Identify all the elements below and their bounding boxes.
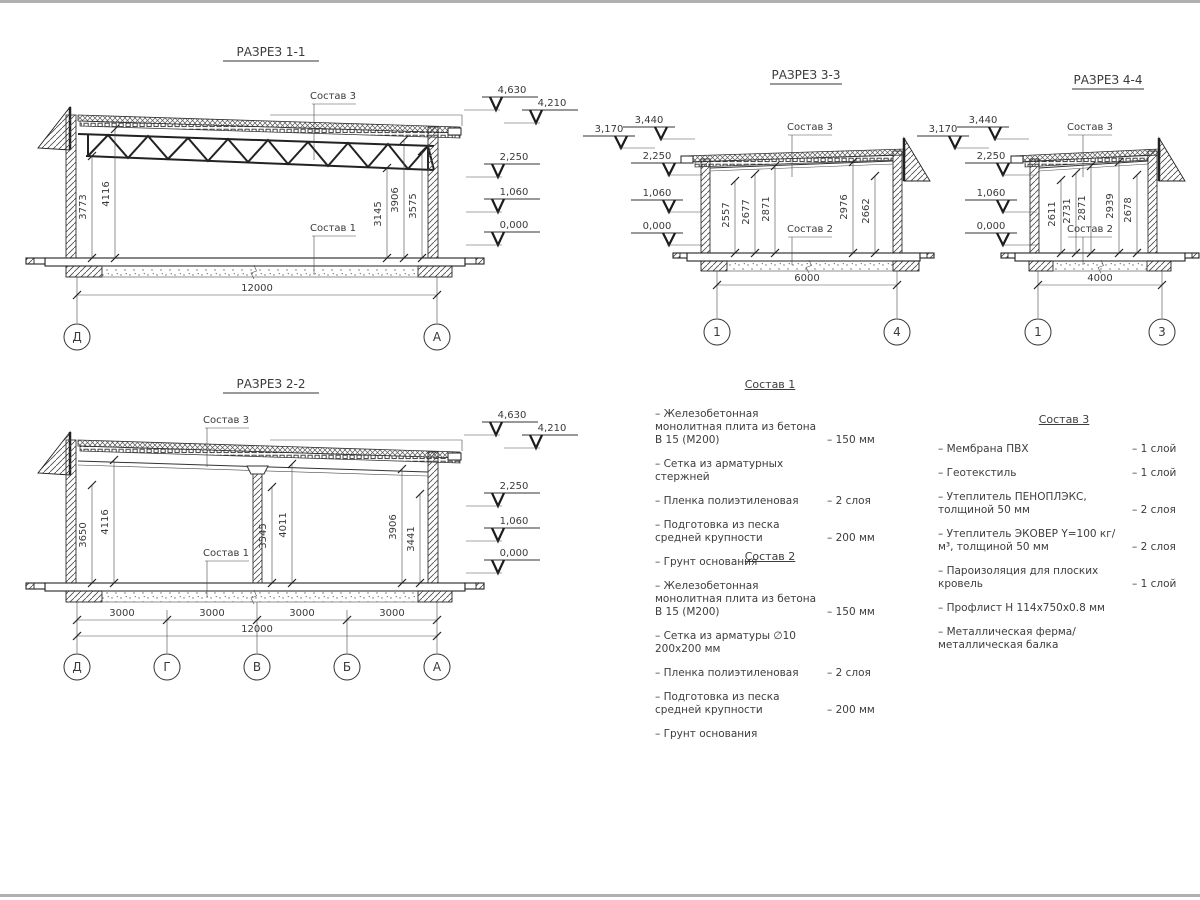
roof-assembly bbox=[78, 440, 461, 476]
section-title: РАЗРЕЗ 3-3 bbox=[770, 68, 842, 84]
item-name: – Сетка из арматурных стержней bbox=[655, 458, 827, 484]
dim-label: 4116 bbox=[101, 181, 112, 206]
svg-text:0,000: 0,000 bbox=[500, 220, 529, 231]
grid-axes: 1 3 bbox=[1025, 319, 1175, 345]
svg-text:1,060: 1,060 bbox=[500, 516, 529, 527]
sheet-bottom-edge bbox=[0, 894, 1200, 897]
composition-item: – Профлист Н 114x750x0.8 мм bbox=[938, 602, 1190, 615]
dim-label: 2871 bbox=[761, 196, 772, 221]
composition-title: Состав 1 bbox=[655, 378, 885, 391]
wall-right bbox=[1148, 151, 1157, 253]
svg-text:2,250: 2,250 bbox=[500, 481, 529, 492]
elevation-marks: 3,170 3,440 2,250 1,060 0,000 bbox=[583, 115, 703, 245]
item-name: – Железобетонная монолитная плита из бет… bbox=[655, 580, 827, 619]
svg-text:4,210: 4,210 bbox=[538, 98, 567, 109]
section-4-4-title: РАЗРЕЗ 4-4 bbox=[1073, 73, 1142, 87]
axis-bubble-label: А bbox=[433, 330, 442, 344]
svg-text:Состав 3: Состав 3 bbox=[1067, 122, 1113, 133]
dim-label: 2939 bbox=[1105, 193, 1116, 218]
dim-label: 4116 bbox=[100, 509, 111, 534]
item-name: – Утеплитель ПЕНОПЛЭКС, толщиной 50 мм bbox=[938, 491, 1132, 517]
item-value: – 1 слой bbox=[1132, 578, 1190, 591]
item-value: – 2 слоя bbox=[1132, 504, 1190, 517]
item-name: – Профлист Н 114x750x0.8 мм bbox=[938, 602, 1132, 615]
elevation-marks: 4,630 4,210 2,250 1,060 0,000 bbox=[270, 410, 578, 573]
width-dimension: 6000 bbox=[713, 271, 901, 318]
item-name: – Грунт основания bbox=[655, 728, 827, 741]
overall-width-label: 4000 bbox=[1087, 273, 1112, 284]
svg-text:2,250: 2,250 bbox=[977, 151, 1006, 162]
grid-axes: Д А bbox=[64, 324, 450, 350]
composition-item: – Подготовка из песка средней крупности … bbox=[655, 519, 885, 545]
svg-text:Состав 1: Состав 1 bbox=[310, 223, 356, 234]
section-3-3-drawing: РАЗРЕЗ 3-3 3,170 3,440 2,250 1,060 0,000 bbox=[575, 55, 945, 355]
width-dimension: 4000 bbox=[1034, 271, 1166, 318]
composition-item: – Пленка полиэтиленовая – 2 слоя bbox=[655, 495, 885, 508]
composition-item: – Подготовка из песка средней крупности … bbox=[655, 691, 885, 717]
section-2-2-drawing: РАЗРЕЗ 2-2 bbox=[20, 370, 590, 700]
item-name: – Мембрана ПВХ bbox=[938, 443, 1132, 456]
roof-scupper bbox=[1011, 156, 1023, 163]
axis-bubble-label: Д bbox=[72, 330, 81, 344]
svg-text:4,630: 4,630 bbox=[498, 85, 527, 96]
dim-label: 3145 bbox=[373, 201, 384, 226]
span-dim-label: 3000 bbox=[199, 608, 224, 619]
roof-composition-callout: Состав 3 bbox=[787, 122, 833, 177]
section-1-1-drawing: РАЗРЕЗ 1-1 bbox=[20, 38, 590, 368]
gable-left bbox=[38, 432, 70, 475]
dim-label: 3906 bbox=[390, 187, 401, 212]
floor-assembly bbox=[1001, 253, 1199, 273]
roof-scupper bbox=[448, 128, 461, 135]
axis-bubble-label: Б bbox=[343, 660, 351, 674]
composition-item: – Утеплитель ПЕНОПЛЭКС, толщиной 50 мм –… bbox=[938, 491, 1190, 517]
svg-text:4,210: 4,210 bbox=[538, 423, 567, 434]
roof-assembly bbox=[78, 115, 461, 138]
interior-dimensions: 3773 4116 3145 3906 3575 bbox=[78, 125, 426, 262]
overall-width-label: 12000 bbox=[241, 283, 273, 294]
svg-text:3,440: 3,440 bbox=[969, 115, 998, 126]
composition-item: – Мембрана ПВХ – 1 слой bbox=[938, 443, 1190, 456]
axis-bubble-label: В bbox=[253, 660, 261, 674]
gable-right bbox=[1159, 138, 1185, 181]
axis-bubble-label: Д bbox=[72, 660, 81, 674]
svg-text:Состав 2: Состав 2 bbox=[787, 224, 833, 235]
item-name: – Металлическая ферма/ металлическая бал… bbox=[938, 626, 1132, 652]
section-title: РАЗРЕЗ 2-2 bbox=[223, 377, 319, 393]
svg-text:Состав 3: Состав 3 bbox=[310, 91, 356, 102]
svg-text:4,630: 4,630 bbox=[498, 410, 527, 421]
floor-assembly bbox=[26, 583, 484, 604]
sheet-top-edge bbox=[0, 0, 1200, 3]
roof-composition-callout: Состав 3 bbox=[203, 415, 249, 467]
composition-item: – Сетка из арматуры ∅10 200x200 мм bbox=[655, 630, 885, 656]
wall-left bbox=[66, 115, 76, 258]
composition-title: Состав 2 bbox=[655, 550, 885, 563]
composition-item: – Сетка из арматурных стержней bbox=[655, 458, 885, 484]
item-value: – 150 мм bbox=[827, 606, 885, 619]
svg-text:Состав 3: Состав 3 bbox=[787, 122, 833, 133]
composition-item: – Геотекстиль – 1 слой bbox=[938, 467, 1190, 480]
grid-axes: Д Г В Б А bbox=[64, 654, 450, 680]
composition-item: – Грунт основания bbox=[655, 728, 885, 741]
svg-text:Состав 1: Состав 1 bbox=[203, 548, 249, 559]
composition-item: – Пароизоляция для плоских кровель – 1 с… bbox=[938, 565, 1190, 591]
svg-text:1,060: 1,060 bbox=[977, 188, 1006, 199]
svg-text:3,440: 3,440 bbox=[635, 115, 664, 126]
dim-label: 2677 bbox=[741, 199, 752, 224]
section-title: РАЗРЕЗ 1-1 bbox=[223, 45, 319, 61]
span-dim-label: 3000 bbox=[289, 608, 314, 619]
item-value: – 2 слоя bbox=[827, 667, 885, 680]
width-dimensions: 3000 3000 3000 3000 12000 bbox=[73, 602, 441, 653]
composition-item: – Пленка полиэтиленовая – 2 слоя bbox=[655, 667, 885, 680]
dim-label: 3906 bbox=[388, 514, 399, 539]
svg-text:3,170: 3,170 bbox=[595, 124, 624, 135]
section-1-1-title: РАЗРЕЗ 1-1 bbox=[236, 45, 305, 59]
floor-assembly bbox=[673, 253, 934, 273]
roof-scupper bbox=[681, 156, 693, 163]
item-name: – Железобетонная монолитная плита из бет… bbox=[655, 408, 827, 447]
span-dim-label: 3000 bbox=[379, 608, 404, 619]
section-4-4-drawing: РАЗРЕЗ 4-4 3,170 3,440 2,250 1,060 0,000 bbox=[915, 55, 1200, 355]
item-value: – 200 мм bbox=[827, 532, 885, 545]
svg-text:0,000: 0,000 bbox=[500, 548, 529, 559]
svg-text:0,000: 0,000 bbox=[977, 221, 1006, 232]
item-value: – 2 слоя bbox=[1132, 541, 1190, 554]
dim-label: 3545 bbox=[258, 523, 269, 548]
interior-dimensions: 3650 4116 3545 4011 3906 3441 bbox=[78, 456, 424, 587]
floor-assembly bbox=[26, 258, 484, 279]
dim-label: 2871 bbox=[1077, 195, 1088, 220]
composition-item: – Металлическая ферма/ металлическая бал… bbox=[938, 626, 1190, 652]
elevation-marks: 3,170 3,440 2,250 1,060 0,000 bbox=[917, 115, 1037, 245]
axis-bubble-label: 1 bbox=[713, 325, 721, 339]
wall-right bbox=[428, 452, 438, 583]
axis-bubble-label: 3 bbox=[1158, 325, 1166, 339]
item-name: – Геотекстиль bbox=[938, 467, 1132, 480]
interior-dimensions: 2557 2677 2871 2976 2662 bbox=[721, 158, 879, 257]
axis-bubble-label: 1 bbox=[1034, 325, 1042, 339]
dim-label: 2976 bbox=[839, 194, 850, 219]
span-dim-label: 3000 bbox=[109, 608, 134, 619]
dim-label: 3650 bbox=[78, 522, 89, 547]
wall-left bbox=[66, 440, 76, 583]
axis-bubble-label: А bbox=[433, 660, 442, 674]
dim-label: 2557 bbox=[721, 202, 732, 227]
wall-right bbox=[893, 151, 902, 253]
item-name: – Подготовка из песка средней крупности bbox=[655, 519, 827, 545]
wall-right bbox=[428, 127, 438, 258]
dim-label: 3773 bbox=[78, 194, 89, 219]
item-name: – Утеплитель ЭКОВЕР Y=100 кг/м³, толщино… bbox=[938, 528, 1132, 554]
wall-left bbox=[1030, 159, 1039, 253]
composition-item: – Железобетонная монолитная плита из бет… bbox=[655, 580, 885, 619]
item-name: – Пленка полиэтиленовая bbox=[655, 667, 827, 680]
svg-text:3,170: 3,170 bbox=[929, 124, 958, 135]
item-value: – 1 слой bbox=[1132, 443, 1190, 456]
composition-item: – Утеплитель ЭКОВЕР Y=100 кг/м³, толщино… bbox=[938, 528, 1190, 554]
composition-item: – Железобетонная монолитная плита из бет… bbox=[655, 408, 885, 447]
svg-text:Состав 2: Состав 2 bbox=[1067, 224, 1113, 235]
section-2-2-title: РАЗРЕЗ 2-2 bbox=[236, 377, 305, 391]
dim-label: 2611 bbox=[1047, 201, 1058, 226]
item-value: – 1 слой bbox=[1132, 467, 1190, 480]
axis-bubble-label: Г bbox=[163, 660, 170, 674]
composition-list-2: Состав 2 – Железобетонная монолитная пли… bbox=[655, 550, 885, 752]
dim-label: 2662 bbox=[861, 198, 872, 223]
width-dimension: 12000 bbox=[73, 277, 441, 323]
roof-assembly bbox=[681, 149, 905, 171]
dim-label: 2731 bbox=[1062, 198, 1073, 223]
axis-bubble-label: 4 bbox=[893, 325, 901, 339]
roof-scupper bbox=[448, 453, 461, 460]
item-name: – Пленка полиэтиленовая bbox=[655, 495, 827, 508]
svg-text:2,250: 2,250 bbox=[500, 152, 529, 163]
item-name: – Сетка из арматуры ∅10 200x200 мм bbox=[655, 630, 827, 656]
section-title: РАЗРЕЗ 4-4 bbox=[1072, 73, 1144, 89]
svg-text:Состав 3: Состав 3 bbox=[203, 415, 249, 426]
svg-text:1,060: 1,060 bbox=[643, 188, 672, 199]
dim-label: 4011 bbox=[278, 512, 289, 537]
overall-width-label: 6000 bbox=[794, 273, 819, 284]
svg-text:1,060: 1,060 bbox=[500, 187, 529, 198]
svg-text:2,250: 2,250 bbox=[643, 151, 672, 162]
drawing-sheet: РАЗРЕЗ 1-1 bbox=[0, 0, 1200, 900]
composition-list-3: Состав 3 – Мембрана ПВХ – 1 слой – Геоте… bbox=[938, 413, 1190, 663]
dim-label: 3441 bbox=[406, 526, 417, 551]
dim-label: 3575 bbox=[408, 193, 419, 218]
composition-title: Состав 3 bbox=[938, 413, 1190, 426]
item-value: – 2 слоя bbox=[827, 495, 885, 508]
truss bbox=[78, 134, 434, 170]
item-value: – 150 мм bbox=[827, 434, 885, 447]
overall-width-label: 12000 bbox=[241, 624, 273, 635]
svg-text:0,000: 0,000 bbox=[643, 221, 672, 232]
dim-label: 2678 bbox=[1123, 197, 1134, 222]
gable-left bbox=[38, 107, 70, 150]
wall-left bbox=[701, 159, 710, 253]
section-3-3-title: РАЗРЕЗ 3-3 bbox=[771, 68, 840, 82]
item-name: – Пароизоляция для плоских кровель bbox=[938, 565, 1132, 591]
grid-axes: 1 4 bbox=[704, 319, 910, 345]
item-value: – 200 мм bbox=[827, 704, 885, 717]
item-name: – Подготовка из песка средней крупности bbox=[655, 691, 827, 717]
interior-dimensions: 2611 2731 2871 2939 2678 bbox=[1047, 158, 1141, 257]
